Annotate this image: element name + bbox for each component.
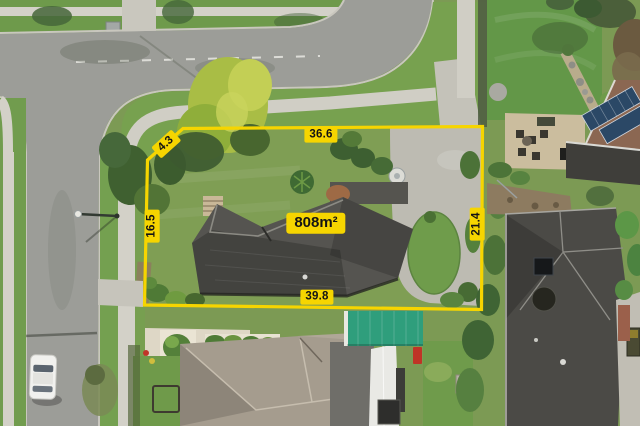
measurement-label-top: 36.6 [304, 128, 337, 143]
footpath-east [457, 0, 475, 98]
white-car [29, 355, 57, 400]
roof-vent [303, 275, 308, 280]
driveway-grass-island [408, 212, 460, 294]
east-fence-hedge [478, 0, 487, 127]
se-neighbor-roof [505, 208, 625, 426]
driveway-crossing-south [98, 279, 143, 307]
dark-satellite-dish [532, 287, 556, 311]
west-verge [0, 98, 26, 426]
area-label: 808m² [286, 213, 345, 234]
measurement-label-bottom: 39.8 [300, 290, 333, 305]
measurement-label-right: 21.4 [470, 207, 485, 240]
se-tile-roof [330, 342, 374, 426]
teal-garage-roof [344, 311, 423, 346]
solar-hot-water [378, 400, 400, 424]
garden-dome [489, 83, 507, 101]
ac-unit [534, 258, 553, 275]
south-neighbor-roof [180, 333, 355, 426]
brick-wall [618, 305, 630, 341]
aerial-listing-photo: 36.6 4.3 16.5 21.4 39.8 808m² [0, 0, 640, 426]
measurement-label-left: 16.5 [145, 209, 160, 242]
streetlight-lamp [75, 211, 82, 218]
red-bin [413, 347, 422, 364]
